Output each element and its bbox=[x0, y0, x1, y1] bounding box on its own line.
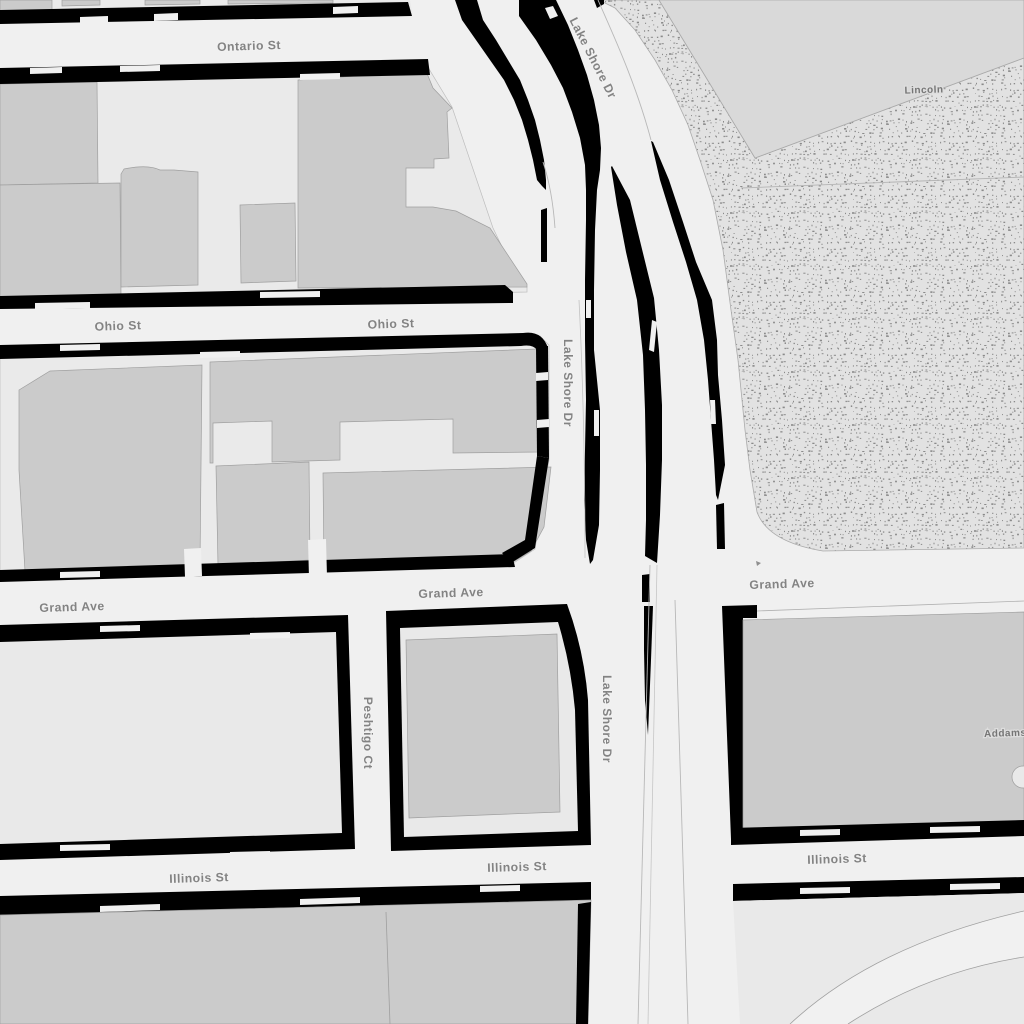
svg-text:Ohio St: Ohio St bbox=[94, 318, 141, 333]
svg-text:Ohio St: Ohio St bbox=[367, 316, 414, 331]
svg-text:Lake Shore Dr: Lake Shore Dr bbox=[561, 339, 575, 427]
svg-text:Addams: Addams bbox=[984, 728, 1024, 740]
svg-text:Grand Ave: Grand Ave bbox=[418, 585, 484, 601]
svg-text:Illinois St: Illinois St bbox=[807, 851, 867, 867]
svg-text:Illinois St: Illinois St bbox=[487, 859, 547, 875]
svg-text:Ontario St: Ontario St bbox=[217, 38, 281, 54]
svg-text:Lake Shore Dr: Lake Shore Dr bbox=[600, 675, 614, 763]
svg-text:Lincoln: Lincoln bbox=[904, 84, 943, 96]
svg-text:Grand Ave: Grand Ave bbox=[39, 599, 105, 615]
svg-text:Peshtigo Ct: Peshtigo Ct bbox=[361, 697, 375, 769]
svg-text:Grand Ave: Grand Ave bbox=[749, 576, 815, 592]
svg-text:Illinois St: Illinois St bbox=[169, 870, 229, 886]
